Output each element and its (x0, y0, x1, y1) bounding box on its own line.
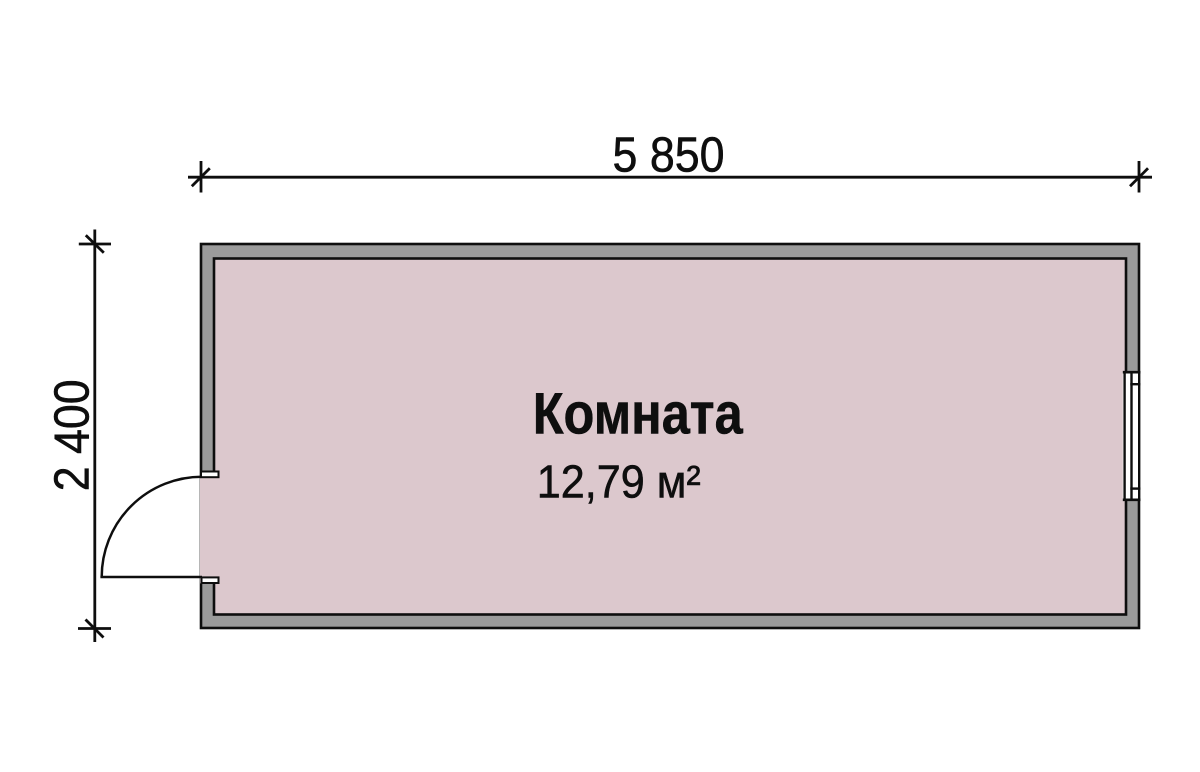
svg-text:Комната: Комната (533, 381, 744, 446)
svg-text:12,79 м²: 12,79 м² (537, 456, 701, 508)
svg-text:5 850: 5 850 (613, 128, 725, 182)
svg-text:2 400: 2 400 (46, 379, 100, 491)
